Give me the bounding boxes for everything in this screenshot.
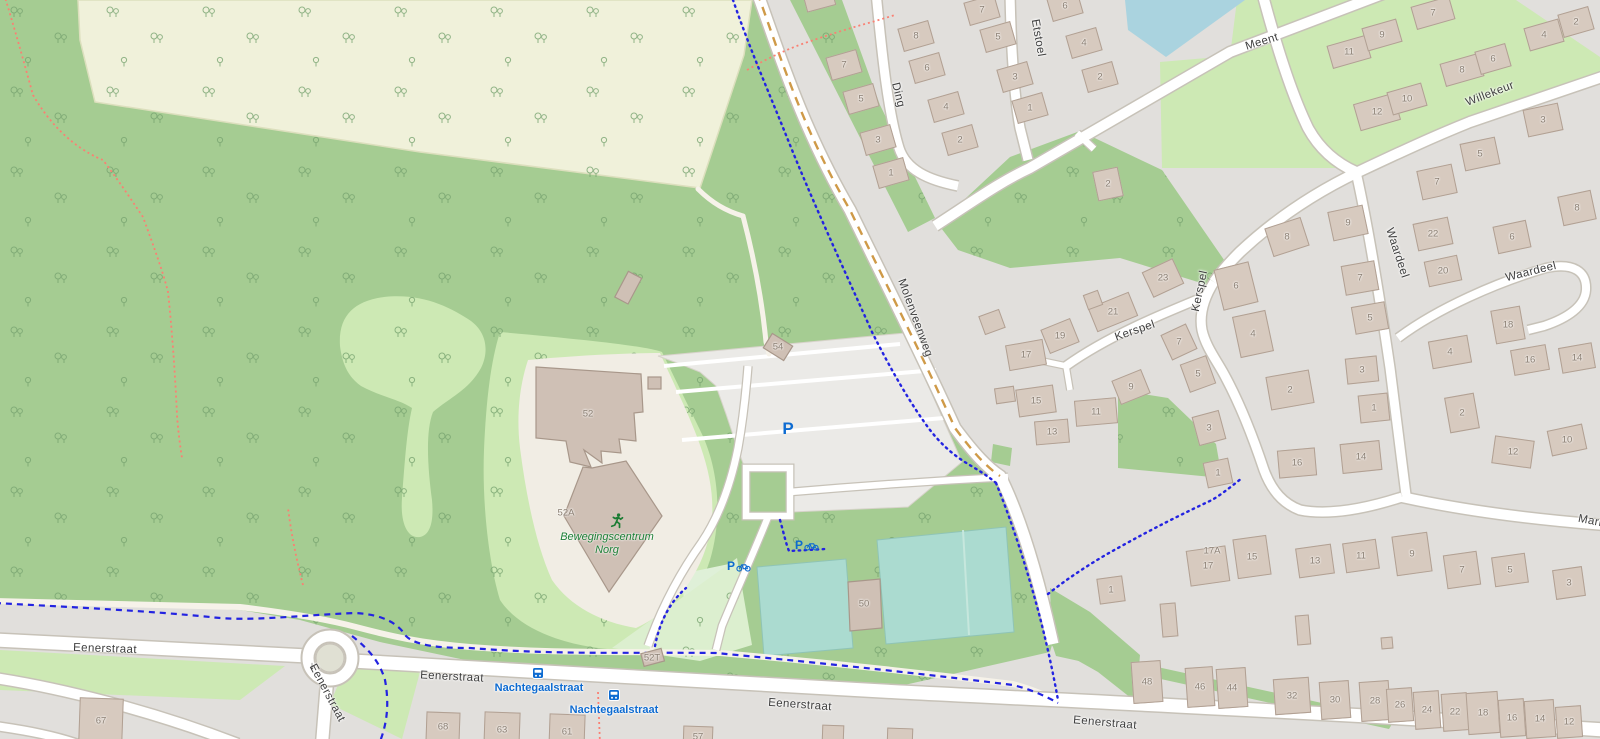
roundabout [308, 636, 352, 680]
green-island [750, 472, 786, 512]
base-map [0, 0, 1600, 739]
map[interactable]: 7531864275316422119712108642357862220975… [0, 0, 1600, 739]
